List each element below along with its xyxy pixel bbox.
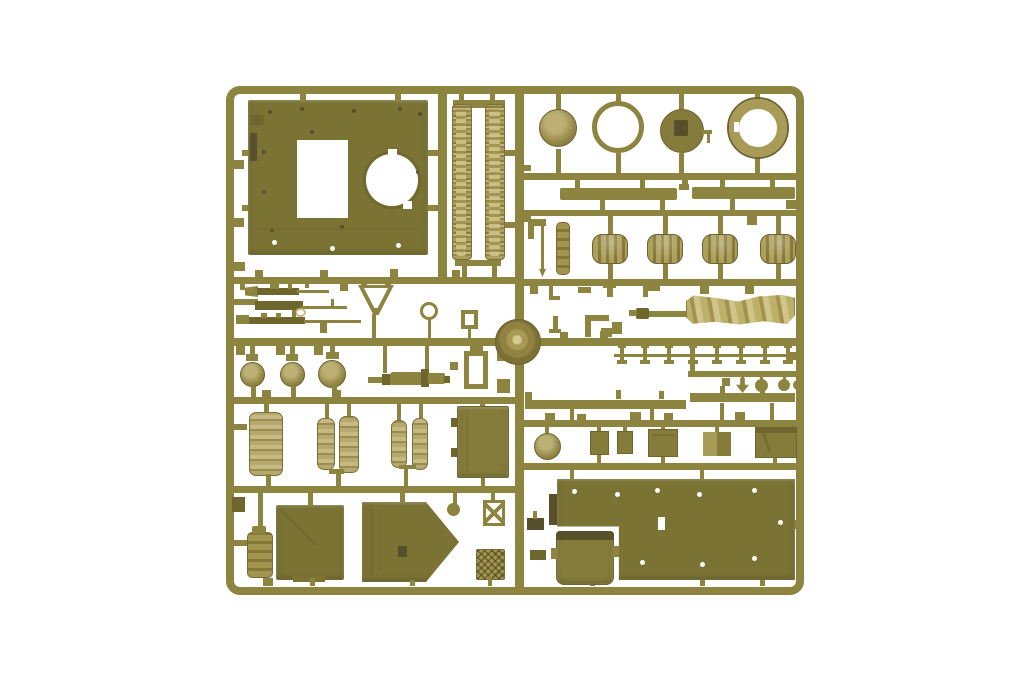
hatch-ring-open (592, 101, 644, 153)
gate-stub (266, 474, 271, 487)
cupola-ring-slot (734, 122, 739, 132)
gate-tab (385, 281, 391, 287)
strip-hook (525, 392, 532, 401)
bogie-casting (592, 234, 628, 264)
stowage-box (590, 431, 609, 455)
gate-tab (314, 346, 323, 355)
small-fitting (603, 284, 616, 288)
deck-hole (778, 520, 783, 525)
gate-stub (492, 266, 497, 279)
small-bracket (643, 286, 648, 297)
gate-stub (608, 263, 613, 280)
gate-tab (361, 281, 367, 287)
door-line (466, 412, 468, 472)
gate-stub (347, 404, 351, 416)
machine-gun-receiver (257, 288, 299, 295)
gate-stub (741, 375, 744, 380)
peg (620, 346, 624, 363)
deck-hole (655, 488, 660, 493)
gate-stub (310, 578, 315, 586)
runner-vertical-topleft (438, 93, 447, 281)
gate-tab (340, 284, 348, 291)
gate-tab (720, 386, 725, 395)
gate-tab (232, 497, 245, 512)
gate-stub (776, 216, 781, 235)
bolt-dot (418, 112, 422, 116)
gate-stub (773, 458, 777, 464)
hook-bar-strip (525, 400, 686, 409)
gate-stub (325, 404, 329, 418)
gate-stub (372, 314, 376, 339)
deck-hole (752, 488, 757, 493)
peg (763, 346, 767, 363)
gate-stub (718, 263, 723, 280)
glacis-mark (398, 546, 407, 557)
bolt-dot (262, 190, 266, 194)
peg (786, 346, 790, 363)
bolt-dot (310, 130, 314, 134)
gun-ring-sight (295, 308, 306, 317)
gate-tab (236, 346, 245, 355)
cupola-ring-slot (789, 122, 794, 132)
photo-canvas (0, 0, 1024, 678)
gate-stub (776, 263, 781, 280)
gate-stub (650, 409, 654, 421)
l-bracket (528, 219, 534, 239)
gate-tab (524, 165, 531, 171)
gate-tab (497, 379, 510, 393)
bedroll (339, 416, 359, 473)
bin-tab (551, 548, 557, 559)
gate-stub (410, 580, 415, 586)
gate-stub (428, 150, 438, 156)
gate-stub (468, 327, 471, 339)
gate-stub (556, 149, 561, 174)
vision-dome (240, 362, 265, 387)
runner-h-right-4 (521, 420, 798, 427)
gate-tab (320, 270, 328, 278)
bolt-dot (398, 107, 402, 111)
tarp-nozzle (636, 308, 649, 319)
gate-tab (276, 346, 285, 355)
gate-tab (450, 362, 458, 370)
small-box-part (612, 322, 622, 334)
gate-stub (700, 470, 704, 480)
gate-tab (747, 216, 757, 225)
small-square (722, 378, 730, 386)
dome-collar (286, 354, 298, 361)
dome-collar (326, 352, 339, 359)
small-cylinder (556, 222, 570, 275)
dark-bracket (527, 518, 544, 530)
log-grain-core (489, 108, 500, 256)
gate-stub (755, 157, 760, 174)
rifle-body (249, 317, 305, 324)
gate-tab (234, 424, 247, 430)
gun-barrel-thin (301, 306, 347, 309)
drill-hole (272, 240, 277, 245)
gun-barrel-breech (428, 373, 445, 384)
vision-dome (318, 360, 346, 388)
glacis-ridge (379, 510, 381, 572)
gate-tab (700, 286, 709, 294)
dome-collar (246, 354, 258, 361)
gate-tab (263, 578, 273, 586)
gate-tab (234, 218, 244, 227)
ball-part (447, 503, 460, 516)
gate-tab (600, 331, 608, 339)
deck-hole (697, 492, 702, 497)
gate-stub (608, 216, 613, 235)
runner-h-left-3 (232, 486, 517, 493)
runner-h-right-5 (521, 463, 798, 470)
gate-tab (505, 150, 515, 156)
hull-plate-knob (251, 115, 264, 125)
deck-hole (640, 560, 645, 565)
gate-stub (663, 263, 668, 280)
sprue-scene (0, 0, 1024, 678)
peg-tie-bar (614, 354, 796, 357)
gate-stub (488, 576, 492, 586)
bolt-dot (262, 150, 266, 154)
gate-tab (505, 222, 515, 228)
gun-front-post (331, 299, 334, 307)
gate-stub (679, 93, 684, 110)
gate-stub (600, 199, 605, 211)
rifle-stock (236, 315, 249, 324)
gate-stub (462, 266, 467, 279)
gate-tab (262, 390, 271, 398)
hatch-disc-hook (707, 134, 710, 143)
rifle-sight (276, 313, 281, 318)
gate-tab (332, 390, 341, 398)
gate-tab (735, 412, 745, 420)
gate-stub (428, 318, 431, 339)
gate-stub (291, 386, 296, 398)
box-lip (755, 427, 797, 433)
gun-barrel-tip (444, 376, 450, 383)
gate-tab (255, 270, 263, 278)
step-bracket (585, 315, 591, 337)
runner-h-right-top (521, 173, 798, 180)
deck-hole (615, 492, 620, 497)
gate-tab (745, 286, 754, 294)
gate-tab (545, 413, 555, 421)
gun-barrel-body (390, 372, 423, 385)
bedroll (391, 420, 407, 468)
gate-stub (556, 93, 561, 110)
deck-hole (752, 556, 757, 561)
gate-stub (760, 375, 763, 381)
bogie-casting (760, 234, 796, 264)
peg (739, 346, 743, 363)
door-hinge (451, 448, 458, 457)
gate-stub (305, 278, 309, 288)
bedroll (412, 418, 428, 470)
gate-stub (400, 493, 405, 503)
gate-stub (783, 375, 786, 381)
gate-stub (336, 472, 341, 487)
tarp-mount-rod (648, 311, 690, 317)
hull-plate-notch (403, 201, 412, 209)
gate-stub (397, 404, 401, 420)
gate-stub (383, 346, 387, 373)
gate-tab (234, 540, 247, 546)
small-disc (793, 380, 803, 390)
machine-gun-magazine (270, 282, 279, 289)
fuel-drum (247, 532, 273, 578)
dark-bracket (530, 550, 546, 560)
gate-stub (322, 321, 327, 333)
gate-stub (425, 346, 429, 371)
hull-plate-notch (388, 149, 397, 157)
idler-wheel-disc (495, 319, 541, 365)
gate-stub (404, 468, 408, 487)
peg (643, 346, 647, 363)
gate-stub (616, 153, 621, 174)
machine-gun-barrel (297, 290, 329, 293)
gate-tab (664, 413, 673, 420)
tarp-nozzle-tip (629, 310, 637, 316)
gate-stub (533, 511, 537, 519)
gate-tab (659, 391, 664, 399)
gate-stub (597, 455, 601, 464)
gate-stub (718, 216, 723, 235)
deck-hole (572, 489, 577, 494)
bolt-dot (352, 109, 356, 113)
stowage-box (617, 431, 633, 454)
log-grain-core (456, 108, 466, 256)
fuel-drum-cap (252, 526, 266, 534)
rifle-bolt (261, 313, 267, 318)
flat-bar (692, 187, 795, 199)
rect-frame-part (464, 351, 488, 389)
gate-stub (472, 346, 476, 352)
small-fitting (578, 287, 591, 293)
peg (667, 346, 671, 363)
gate-stub (663, 216, 668, 235)
hatch-disc-latch (674, 120, 688, 136)
bar-joiner (679, 184, 689, 190)
bedroll (317, 418, 335, 470)
peg (715, 346, 719, 363)
runner-h-right-3 (521, 279, 798, 286)
bogie-casting (647, 234, 683, 264)
gate-stub (570, 409, 574, 421)
drill-hole (330, 246, 335, 251)
panel-line (256, 228, 421, 230)
runner-h-left-2 (232, 397, 517, 404)
glacis-ridge (370, 508, 373, 574)
hull-plate-ring-rim (363, 151, 421, 209)
flat-bar (560, 188, 677, 200)
gate-tab (234, 160, 244, 169)
vision-dome (280, 362, 305, 387)
hook-bar-strip (690, 393, 795, 402)
gate-stub (770, 403, 774, 421)
gate-stub (240, 284, 245, 290)
gate-stub (428, 205, 438, 211)
gate-tab (616, 390, 621, 399)
gate-tab (234, 262, 245, 271)
hatch-door-panel (457, 406, 509, 478)
gate-stub (419, 404, 423, 418)
bolt-dot (300, 107, 304, 111)
gate-tab (530, 286, 538, 294)
box-lid-line (652, 434, 674, 436)
bolt-dot (268, 110, 272, 114)
round-cap-part (534, 433, 561, 460)
hull-plate-hinge (250, 133, 257, 161)
bogie-casting (702, 234, 738, 264)
door-hinge (451, 418, 458, 427)
deck-hole (700, 562, 705, 567)
drill-hole (396, 243, 401, 248)
gate-tab (786, 200, 796, 209)
rifle-barrel (304, 320, 361, 323)
gate-stub (730, 198, 735, 211)
gate-stub (679, 153, 684, 174)
gate-tab (452, 270, 460, 278)
gate-tab (560, 332, 568, 339)
deck-slot (658, 517, 665, 530)
gate-stub (570, 470, 574, 480)
antenna-rod (541, 223, 544, 271)
gate-stub (481, 478, 485, 487)
stowage-box-twotone-half (717, 432, 731, 456)
plate-step (293, 576, 325, 582)
small-hook-part (549, 296, 560, 300)
gate-stub (720, 403, 724, 421)
bedroll (249, 412, 283, 476)
hull-plate-rect-opening (297, 140, 348, 218)
cross-brace-frame (483, 500, 505, 526)
gate-stub (251, 386, 256, 398)
gate-tab (630, 412, 641, 420)
gate-stub (690, 346, 695, 372)
gate-tab (390, 269, 398, 277)
bin-lid-lip (556, 531, 614, 540)
gate-stub (661, 457, 665, 464)
gate-tab (760, 386, 765, 395)
bin-tab (613, 546, 619, 557)
gate-tab (577, 414, 586, 421)
machine-gun-sight (288, 284, 292, 289)
dome-hatch-cover (539, 109, 577, 147)
